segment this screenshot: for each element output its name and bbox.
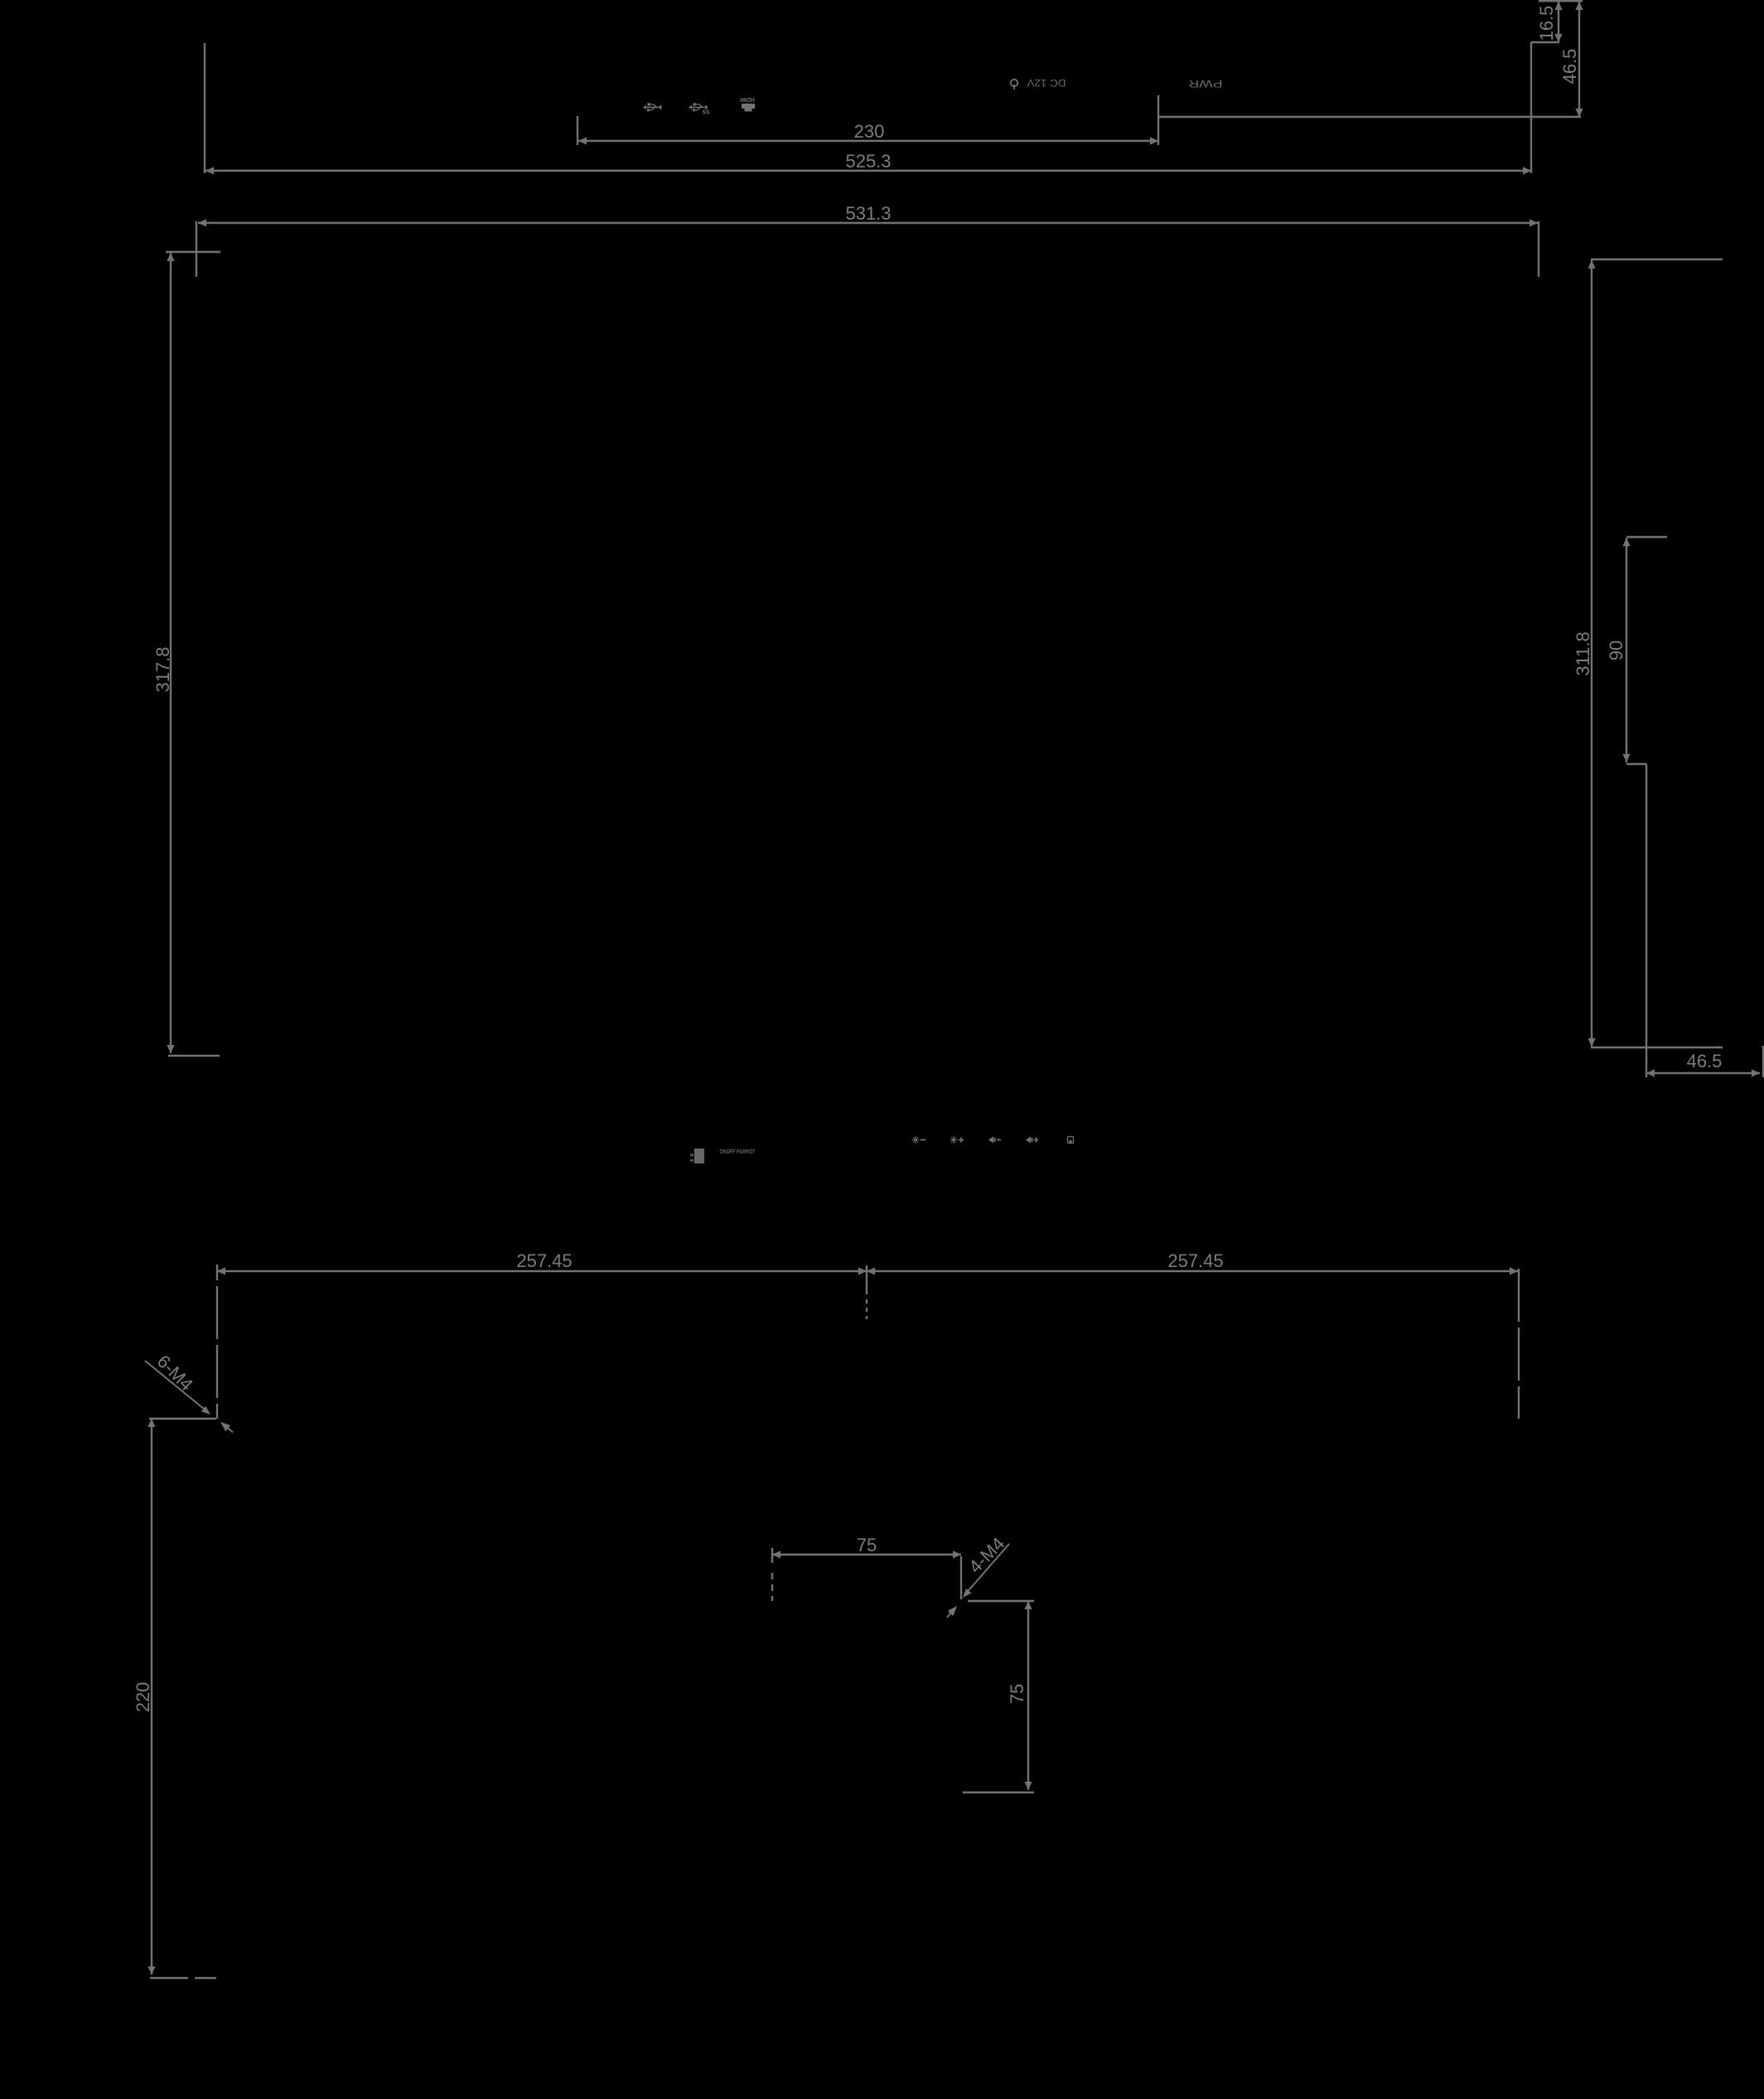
svg-text:16.5: 16.5 (1536, 6, 1557, 41)
svg-text:311.8: 311.8 (1573, 631, 1593, 675)
svg-text:220: 220 (133, 1682, 153, 1713)
svg-text:PWR: PWR (1188, 78, 1222, 89)
svg-text:257.45: 257.45 (516, 1250, 572, 1271)
svg-text:75: 75 (1007, 1684, 1027, 1704)
svg-text:75: 75 (857, 1535, 877, 1555)
svg-text:257.45: 257.45 (1167, 1250, 1223, 1271)
svg-text:DC 12V: DC 12V (1027, 77, 1066, 89)
svg-text:46.5: 46.5 (1559, 49, 1580, 85)
svg-text:317.8: 317.8 (152, 646, 173, 692)
svg-text:90: 90 (1606, 641, 1626, 660)
svg-text:ONOFF PARROT: ONOFF PARROT (720, 1149, 756, 1155)
svg-text:230: 230 (854, 121, 885, 142)
svg-text:HDMI: HDMI (740, 96, 755, 104)
svg-text:46.5: 46.5 (1687, 1051, 1723, 1071)
svg-text:531.3: 531.3 (845, 203, 891, 224)
svg-text:SS: SS (702, 110, 710, 116)
svg-text:525.3: 525.3 (845, 151, 891, 172)
